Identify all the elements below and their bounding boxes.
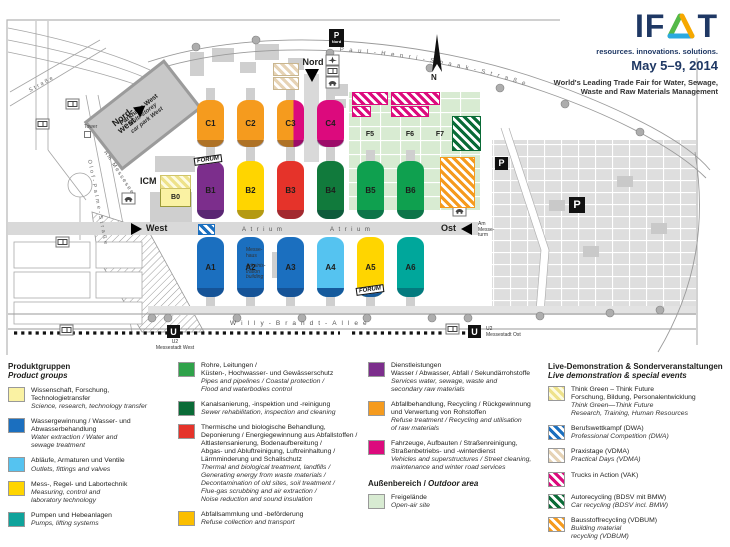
bus-icon xyxy=(66,99,79,109)
street-willy-brandt-allee: Willy-Brandt-Allee xyxy=(230,320,372,327)
legend-title-live-events: Live-Demonstration & Sonderveranstaltung… xyxy=(548,362,728,380)
logo-tagline: resources. innovations. solutions. xyxy=(560,47,718,56)
legend-swatch xyxy=(368,401,385,416)
street-nw: Straße xyxy=(28,75,56,94)
parking-icon: P xyxy=(569,197,585,213)
legend-item: Wissenschaft, Forschung, Technologietran… xyxy=(8,387,174,411)
hall-C3: C3 xyxy=(277,100,304,147)
hall-A6: A6 xyxy=(397,237,424,297)
entrance-nord-label: Nord xyxy=(299,57,327,67)
hall-B0: B0 xyxy=(160,188,191,207)
legend-swatch xyxy=(8,418,25,433)
legend-item: Think Green – Think Future Forschung, Bi… xyxy=(548,386,728,418)
entrance-west-label: West xyxy=(146,223,167,233)
hall-B6: B6 xyxy=(397,161,424,219)
legend-col-live-events: Live-Demonstration & Sonderveranstaltung… xyxy=(548,362,728,547)
vdbum-recycling-area xyxy=(440,157,475,208)
hall-B4: B4 xyxy=(317,161,344,219)
legend-item: Abläufe, Armaturen und VentileOutlets, f… xyxy=(8,457,174,473)
legend-swatch xyxy=(548,517,565,532)
vak-trucks-area-2 xyxy=(391,92,440,105)
dwa-competition-area xyxy=(198,224,215,235)
shuttle-icon xyxy=(326,55,339,65)
legend-item: Bausstoffrecycling (VDBUM)Building mater… xyxy=(548,517,728,541)
legend-swatch xyxy=(368,494,385,509)
vdma-area-1 xyxy=(273,63,299,76)
legend-item: Autorecycling (BDSV mit BMW)Car recyclin… xyxy=(548,494,728,510)
legend-item: Praxistage (VDMA)Practical Days (VDMA) xyxy=(548,448,728,464)
parking-icon: P xyxy=(495,157,508,170)
legend-swatch xyxy=(548,472,565,487)
logo-text-if: IF xyxy=(635,10,665,42)
legend-swatch xyxy=(8,387,25,402)
legend-swatch xyxy=(548,448,565,463)
tower-icon xyxy=(84,131,91,138)
legend-item: Rohre, Leitungen / Küsten-, Hochwasser- … xyxy=(178,362,368,394)
bus-icon xyxy=(56,237,69,247)
icm-label: ICM xyxy=(140,176,157,186)
area-F6: F6 xyxy=(392,131,428,138)
hall-B5: B5 xyxy=(357,161,384,219)
area-F5: F5 xyxy=(352,131,388,138)
legend-swatch xyxy=(548,425,565,440)
legend-swatch xyxy=(368,362,385,377)
legend-item: FreigeländeOpen-air site xyxy=(368,494,546,510)
bus-icon xyxy=(446,324,459,334)
bus-icon xyxy=(36,119,49,129)
entrance-nord-arrow-icon xyxy=(305,69,319,82)
legend-col-2: Rohre, Leitungen / Küsten-, Hochwasser- … xyxy=(178,362,368,534)
bus-icon xyxy=(326,66,339,76)
entrance-west-arrow-icon xyxy=(131,223,142,235)
legend-swatch xyxy=(368,440,385,455)
legend-item: Mess-, Regel- und LabortechnikMeasuring,… xyxy=(8,481,174,505)
vak-trucks-area-1 xyxy=(352,92,388,105)
atrium-label-1: Atrium xyxy=(242,227,286,233)
legend-item: Pumpen und HebeanlagenPumps, lifting sys… xyxy=(8,512,174,528)
legend-item: Wassergewinnung / Wasser- und Abwasserbe… xyxy=(8,418,174,450)
event-subtitle: World's Leading Trade Fair for Water, Se… xyxy=(520,78,718,97)
legend-swatch xyxy=(8,481,25,496)
legend-item: Berufswettkampf (DWA)Professional Compet… xyxy=(548,425,728,441)
vak-trucks-area-3 xyxy=(352,106,371,117)
am-messeturm-label: Am Messe- turm xyxy=(478,222,494,239)
legend-swatch xyxy=(548,494,565,509)
bus-icon xyxy=(60,325,73,335)
legend-item: Dienstleistungen Wasser / Abwasser, Abfa… xyxy=(368,362,546,394)
atrium-label-2: Atrium xyxy=(330,227,374,233)
hall-C2: C2 xyxy=(237,100,264,147)
car-icon xyxy=(326,77,339,88)
legend-swatch xyxy=(8,512,25,527)
entrance-ost-label: Ost xyxy=(441,223,456,233)
ifat-site-map-page: Willy-Brandt-Allee Olof-Palme-Straße Str… xyxy=(0,0,730,547)
legend-swatch xyxy=(178,401,195,416)
legend-swatch xyxy=(178,511,195,526)
event-dates: May 5–9, 2014 xyxy=(560,58,718,73)
messehaus-label: Messe- haus xyxy=(246,248,262,259)
vdma-area-2 xyxy=(273,77,299,90)
entrance-ost-arrow-icon xyxy=(461,223,472,235)
legend-swatch xyxy=(178,362,195,377)
city-blocks xyxy=(14,242,142,324)
think-green-area xyxy=(160,175,191,189)
ubahn-west-icon: U xyxy=(167,325,180,338)
parking-area-east xyxy=(492,128,696,312)
tower-label: Tower xyxy=(84,124,97,138)
car-icon xyxy=(122,193,135,204)
legend-col-3: Dienstleistungen Wasser / Abwasser, Abfa… xyxy=(368,362,546,517)
compass-n-label: N xyxy=(431,73,437,82)
hall-A4: A4 xyxy=(317,237,344,297)
hall-B2: B2 xyxy=(237,161,264,219)
legend-title-outdoor: Außenbereich / Outdoor area xyxy=(368,479,546,488)
legend-item: Thermische und biologische Behandlung, D… xyxy=(178,424,368,504)
vak-trucks-area-4 xyxy=(391,106,429,117)
area-F7: F7 xyxy=(427,131,453,138)
hall-C4: C4 xyxy=(317,100,344,147)
ifat-logo: IF T xyxy=(560,10,718,42)
legend-item: Abfallbehandlung, Recycling / Rückgewinn… xyxy=(368,401,546,433)
hall-A3: A3 xyxy=(277,237,304,297)
hall-B1: B1 xyxy=(197,161,224,219)
parking-nord-icon: PNord xyxy=(329,29,344,47)
bdsv-car-recycling-area xyxy=(452,116,481,151)
logo-triangle-icon xyxy=(666,12,696,40)
legend-swatch xyxy=(548,386,565,401)
u2-messestadt-ost-label: U2 Messestadt Ost xyxy=(486,327,521,338)
u2-messestadt-west-label: U2 Messestadt West xyxy=(145,340,205,351)
ubahn-ost-icon: U xyxy=(468,325,481,338)
legend-swatch xyxy=(8,457,25,472)
logo-text-t: T xyxy=(697,10,718,42)
legend-item: Kanalsanierung, -inspektion und -reinigu… xyxy=(178,401,368,417)
legend-item: Abfallsammlung und -beförderungRefuse co… xyxy=(178,511,368,527)
legend-item: Fahrzeuge, Aufbauten / Straßenreinigung,… xyxy=(368,440,546,472)
legend-item: Trucks in Action (VAK) xyxy=(548,472,728,487)
hall-B3: B3 xyxy=(277,161,304,219)
hall-A1: A1 xyxy=(197,237,224,297)
legend-swatch xyxy=(178,424,195,439)
legend-title-product-groups: Produktgruppen Product groups xyxy=(8,362,174,380)
hall-C1: C1 xyxy=(197,100,224,147)
legend-col-product-groups: Produktgruppen Product groups Wissenscha… xyxy=(8,362,174,535)
